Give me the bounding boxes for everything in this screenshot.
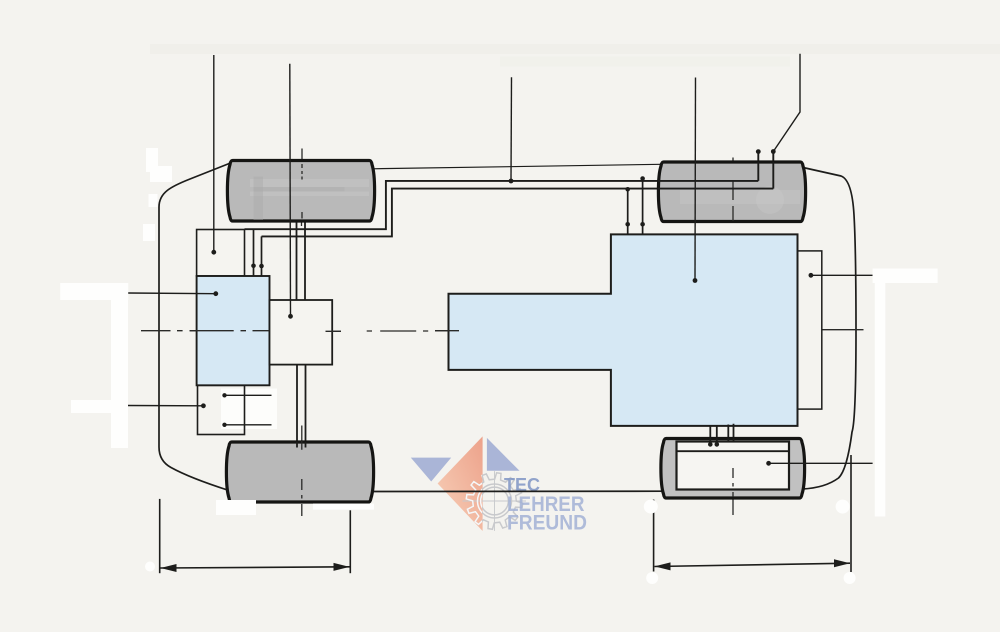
svg-text:FREUND: FREUND — [507, 511, 587, 534]
